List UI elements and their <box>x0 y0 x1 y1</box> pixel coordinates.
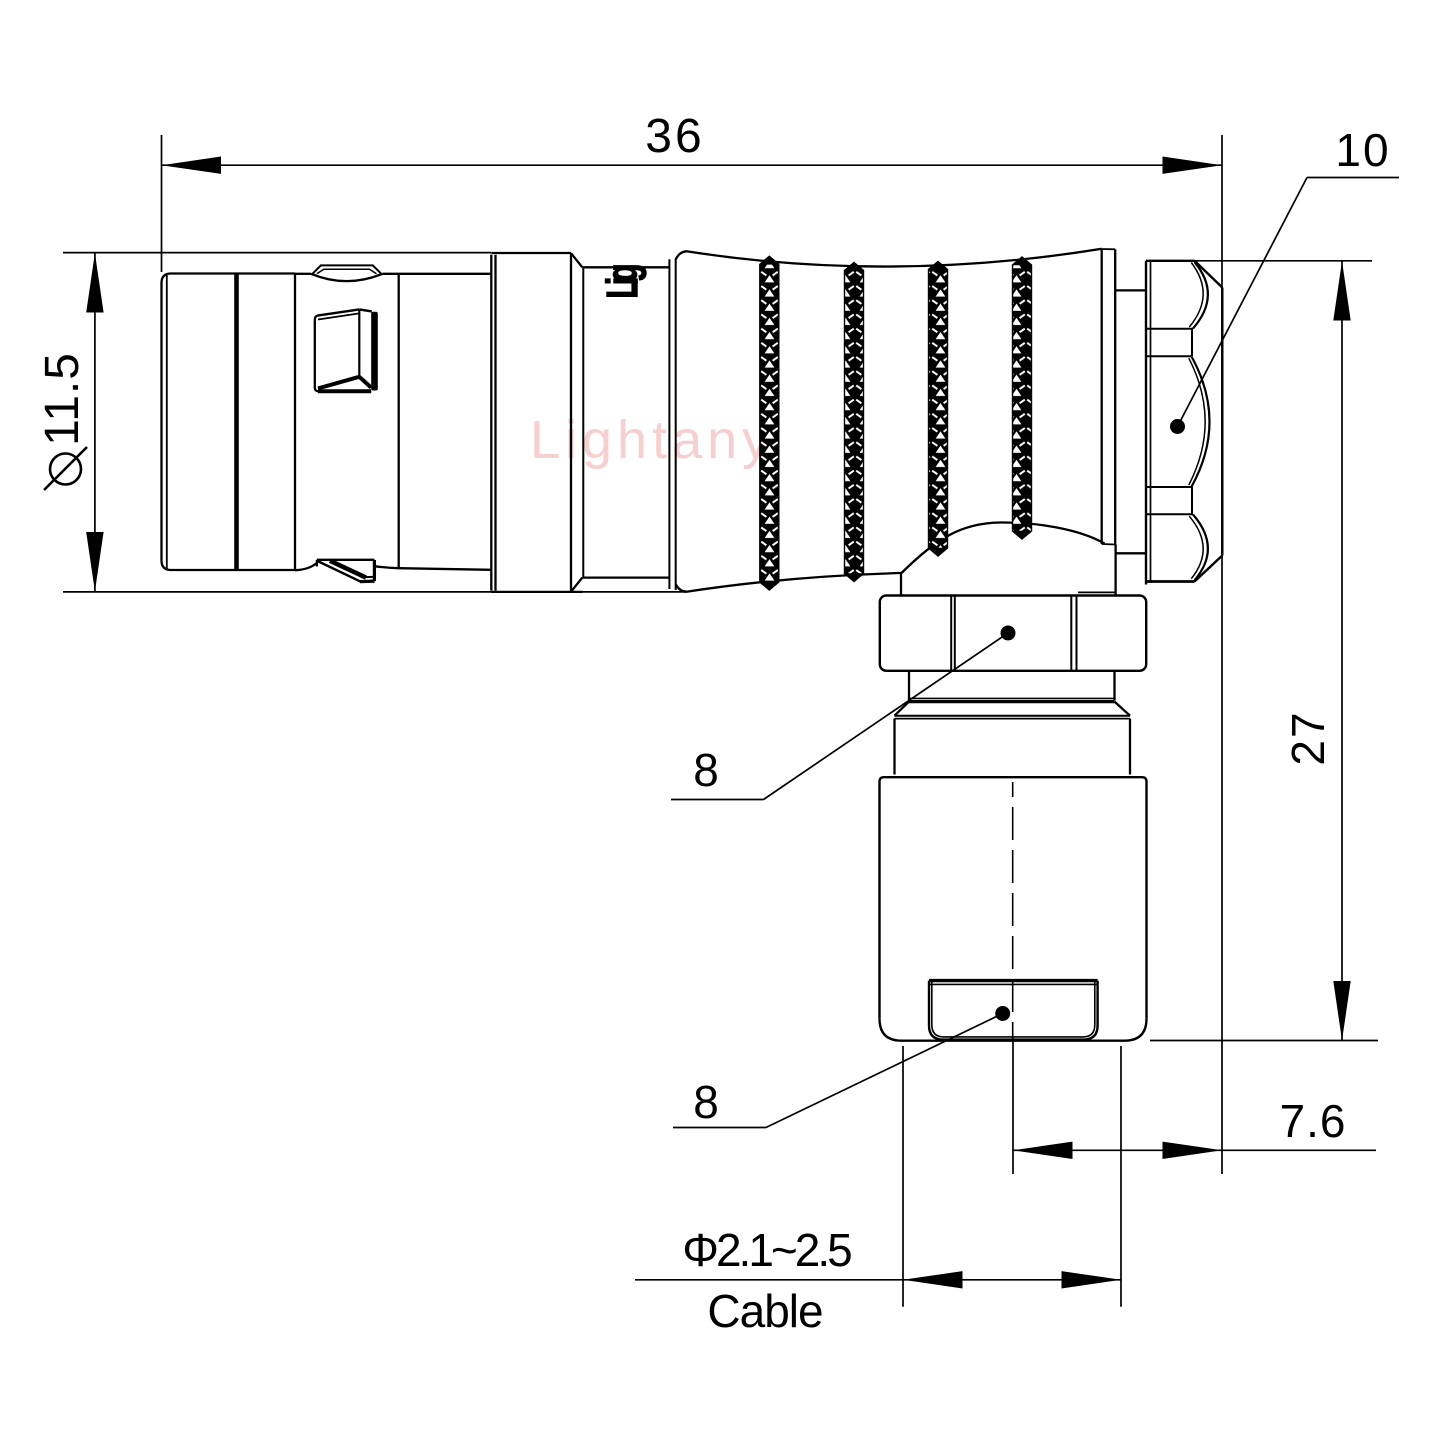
svg-text:Cable: Cable <box>707 1285 822 1337</box>
svg-text:7.6: 7.6 <box>1280 1095 1347 1147</box>
svg-text:8: 8 <box>693 1076 719 1128</box>
svg-text:27: 27 <box>1282 710 1334 765</box>
svg-text:Lightany: Lightany <box>530 410 774 470</box>
svg-text:36: 36 <box>645 110 704 163</box>
svg-text:Φ2.1~2.5: Φ2.1~2.5 <box>682 1224 851 1276</box>
svg-text:8: 8 <box>693 744 719 796</box>
svg-text:11.5: 11.5 <box>36 352 89 446</box>
svg-text:Lig: Lig <box>597 265 646 299</box>
svg-text:10: 10 <box>1335 124 1390 176</box>
